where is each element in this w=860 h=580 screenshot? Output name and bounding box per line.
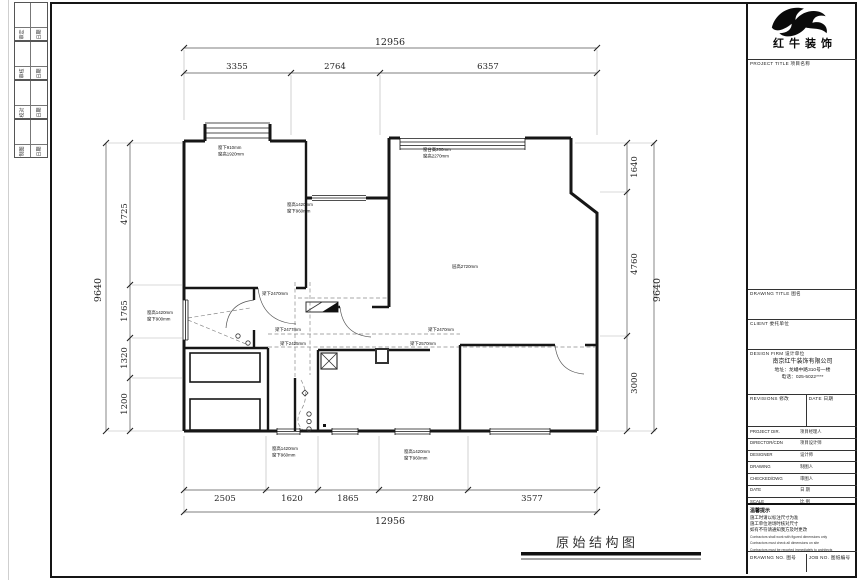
row-zh: 项目经理人 [800, 427, 821, 435]
pipe [307, 419, 311, 423]
project-title-section: PROJECT TITLE 项目名称 [748, 60, 857, 290]
cad-sheet: 审定 日期 审核 日期 校对 日期 制图 日期 1295 [0, 0, 860, 580]
duct-cross [321, 353, 337, 369]
drawing-no-label: DRAWING NO. 图号 [748, 554, 806, 562]
job-no-label: JOB NO. 图纸编号 [807, 554, 857, 562]
title-underline-thick [521, 552, 701, 556]
drawing-title-section: DRAWING TITLE 图名 [748, 290, 857, 320]
dashed-beam-lines [188, 282, 595, 430]
personnel-row: DRAWING 制图人 [748, 462, 857, 474]
title-block: 红牛装饰 PROJECT TITLE 项目名称 DRAWING TITLE 图名… [746, 2, 857, 574]
row-label: PROJECT DIR. [748, 427, 800, 434]
logo-text: 红牛装饰 [768, 35, 837, 51]
anno-window: 窗下910mm [218, 144, 242, 151]
dim-right-segment: 3000 [630, 372, 640, 394]
client-section: CLIENT 委托单位 [748, 320, 857, 350]
pipe [307, 412, 311, 416]
anno-beam: 梁下2425mm [280, 340, 306, 347]
dim-bottom-segment: 2505 [214, 494, 236, 504]
dim-top-segment: 6357 [477, 62, 499, 72]
personnel-section: PROJECT DIR. 项目经理人 DIRECTOR/CDN 项目设计师 DE… [748, 427, 857, 503]
dim-left-total: 9640 [93, 278, 104, 302]
anno-beam: 梁下2470mm [428, 326, 454, 333]
anno-window: 窗高1920mm [218, 151, 244, 158]
anno-window: 窗下960mm [287, 208, 311, 215]
note-line-en: Contractors must check all dimensions on… [750, 541, 855, 545]
personnel-row: DESIGNER 设计师 [748, 451, 857, 463]
design-firm-section: DESIGN FIRM 设计单位 南京红牛装饰有限公司 地址：龙蟠中路310号一… [748, 350, 857, 395]
date-col-label: DATE 日期 [807, 395, 857, 403]
flue-hatch-solid [322, 302, 338, 312]
floor-drain [246, 341, 250, 345]
dim-right-segment: 1640 [630, 156, 640, 178]
dim-left-segment: 4725 [120, 203, 130, 225]
anno-window: 窗下960mm [272, 452, 296, 459]
anno-beam: 梁下2477mm [275, 326, 301, 333]
drawing-title-label: DRAWING TITLE 图名 [748, 290, 857, 298]
company-address: 地址：龙蟠中路310号一楼 [748, 367, 857, 374]
dim-right-segment: 4760 [630, 253, 640, 275]
anno-window: 窗台高200mm [423, 146, 451, 153]
row-zh: 项目设计师 [800, 439, 821, 447]
anno-window: 窗高1420mm [287, 201, 313, 208]
floor-drain [236, 334, 240, 338]
flue-hatch-line [306, 302, 322, 312]
row-label: DESIGNER [748, 451, 800, 458]
dim-bottom-segment: 1620 [281, 494, 303, 504]
extension-lines [108, 50, 656, 514]
personnel-row: DATE 日 期 [748, 486, 857, 498]
row-label: DIRECTOR/CDN [748, 439, 800, 446]
dim-top-segment: 2764 [324, 62, 346, 72]
window-lines [183, 123, 550, 435]
anno-window: 窗下900mm [147, 316, 171, 323]
anno-beam: 梁下2470mm [262, 290, 288, 297]
personnel-row: PROJECT DIR. 项目经理人 [748, 427, 857, 439]
dim-bottom-segment: 3577 [521, 494, 543, 504]
note-line-en: Contractors shall work with figured dime… [750, 535, 855, 539]
valve-diamond [302, 390, 308, 396]
drawing-title-text: 原始结构图 [556, 536, 639, 551]
dim-right-total: 9640 [652, 278, 663, 302]
logo-bird-icon [764, 3, 842, 37]
note-line: 如有不符请通知我方及时更改 [750, 527, 855, 533]
company-phone: 电话：025-5022**** [748, 374, 857, 381]
dim-left-segment: 1320 [120, 347, 130, 369]
anno-window: 窗高1420mm [147, 309, 173, 316]
point-marker [323, 424, 326, 427]
personnel-row: DIRECTOR/CDN 项目设计师 [748, 439, 857, 451]
personnel-row: CHECKED/DWG 审图人 [748, 474, 857, 486]
anno-window: 窗高1420mm [272, 445, 298, 452]
dim-bottom-segment: 2780 [412, 494, 434, 504]
dim-bottom-total: 12956 [375, 516, 405, 527]
dim-top-segment: 3355 [226, 62, 248, 72]
company-name: 南京红牛装饰有限公司 [748, 358, 857, 367]
number-section: DRAWING NO. 图号 JOB NO. 图纸编号 [748, 554, 857, 572]
row-zh: 设计师 [800, 451, 813, 459]
platform-box [190, 399, 260, 430]
row-label: DRAWING [748, 462, 800, 469]
anno-beam: 梁下2570mm [410, 340, 436, 347]
revisions-label: REVISIONS 修改 [748, 395, 806, 403]
anno-window: 窗高2270mm [423, 153, 449, 160]
dim-top-total: 12956 [375, 37, 405, 48]
revisions-section: REVISIONS 修改 DATE 日期 [748, 395, 857, 427]
notes-title: 温馨提示 [750, 507, 855, 514]
dim-left-segment: 1200 [120, 393, 130, 415]
dim-left-segment: 1765 [120, 300, 130, 322]
row-label: DATE [748, 486, 800, 493]
walls-outer [184, 124, 597, 431]
row-zh: 日 期 [800, 486, 810, 494]
logo-section: 红牛装饰 [748, 2, 857, 60]
note-line-en: Contractors must be reported immediately… [750, 548, 855, 552]
project-title-label: PROJECT TITLE 项目名称 [748, 60, 857, 68]
floorplan-svg: 12956 3355 2764 6357 2505 1620 1865 2780… [0, 0, 860, 580]
fixtures [190, 302, 388, 431]
notes-section: 温馨提示 施工时请以标注尺寸为准 施工单位进场时核对尺寸 如有不符请通知我方及时… [748, 505, 857, 552]
anno-window: 窗下960mm [404, 455, 428, 462]
client-label: CLIENT 委托单位 [748, 320, 857, 328]
anno-ceiling-height: 层高2720mm [452, 263, 478, 270]
row-zh: 制图人 [800, 462, 813, 470]
row-label: CHECKED/DWG [748, 474, 800, 481]
design-firm-label: DESIGN FIRM 设计单位 [748, 350, 857, 358]
anno-window: 窗高1420mm [404, 448, 430, 455]
platform-box [190, 353, 260, 382]
row-zh: 审图人 [800, 474, 813, 482]
pillar [376, 349, 388, 363]
dim-bottom-segment: 1865 [337, 494, 359, 504]
